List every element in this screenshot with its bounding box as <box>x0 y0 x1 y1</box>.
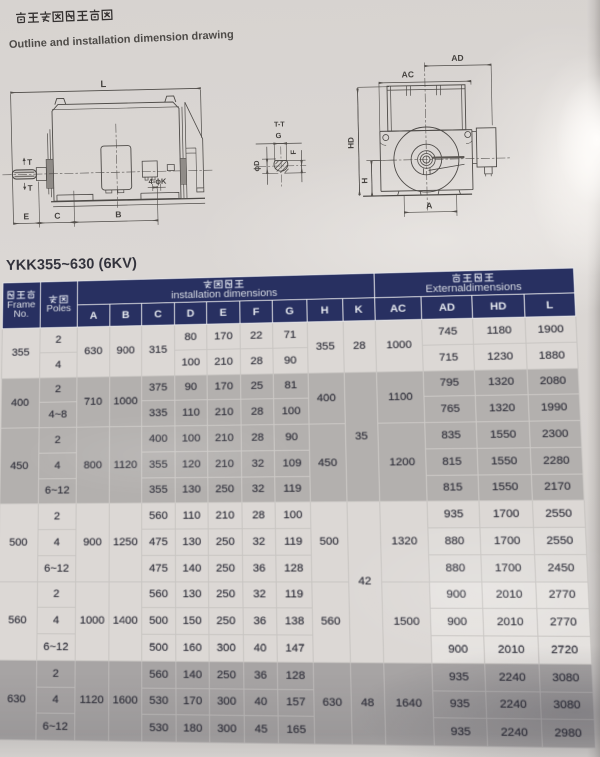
svg-text:AD: AD <box>451 53 463 63</box>
svg-text:C: C <box>54 211 60 221</box>
svg-text:H: H <box>360 177 369 183</box>
svg-text:F: F <box>289 149 298 154</box>
svg-text:AC: AC <box>402 69 414 79</box>
svg-text:ϕD: ϕD <box>252 160 261 172</box>
svg-text:T-T: T-T <box>274 121 285 128</box>
svg-text:4-ϕK: 4-ϕK <box>149 177 167 186</box>
svg-text:E: E <box>23 211 29 221</box>
svg-text:T: T <box>28 184 33 193</box>
svg-text:T: T <box>27 158 32 167</box>
svg-text:HD: HD <box>346 137 355 149</box>
svg-text:L: L <box>100 79 106 90</box>
svg-text:G: G <box>276 131 282 140</box>
svg-text:B: B <box>115 209 121 219</box>
